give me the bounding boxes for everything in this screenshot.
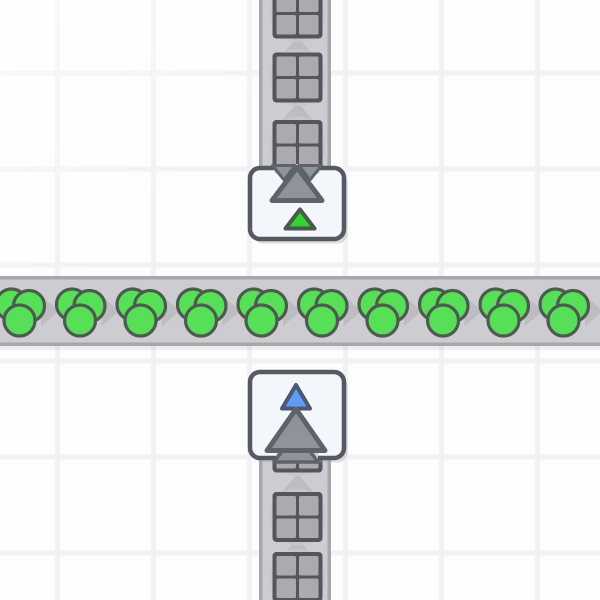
green-circle <box>367 305 398 336</box>
green-circle <box>65 305 96 336</box>
belt-edge-left <box>259 458 263 600</box>
square-quadrant <box>299 556 319 576</box>
square-shape-item <box>269 0 326 42</box>
square-shape-item <box>269 489 326 546</box>
square-quadrant <box>299 15 319 35</box>
tunnel-exit-tile[interactable] <box>250 164 348 244</box>
factory-world-canvas[interactable] <box>0 0 600 600</box>
square-quadrant <box>299 147 319 167</box>
square-shape-item <box>269 49 326 106</box>
green-circle <box>428 305 459 336</box>
belt-edge-right <box>328 458 332 600</box>
square-quadrant <box>277 147 297 167</box>
belt-edge-top <box>0 276 600 280</box>
green-circle <box>186 305 217 336</box>
square-quadrant <box>299 57 319 77</box>
conveyor-belt-horizontal[interactable] <box>0 276 600 350</box>
belt-edge-right <box>328 0 332 170</box>
tunnel-entry-tile[interactable] <box>250 372 348 463</box>
square-quadrant <box>277 519 297 539</box>
square-quadrant <box>277 57 297 77</box>
square-quadrant <box>299 519 319 539</box>
square-quadrant <box>299 0 319 12</box>
square-quadrant <box>277 579 297 599</box>
belt-edge-bottom <box>0 343 600 347</box>
green-circle <box>125 305 156 336</box>
conveyor-belt-vertical-top[interactable] <box>259 0 331 174</box>
game-viewport[interactable] <box>0 0 600 600</box>
green-circle <box>4 305 35 336</box>
square-quadrant <box>299 496 319 516</box>
square-quadrant <box>299 79 319 99</box>
square-quadrant <box>277 124 297 144</box>
green-circle <box>548 305 579 336</box>
belt-shadow <box>0 346 600 350</box>
square-quadrant <box>277 0 297 12</box>
square-quadrant <box>277 15 297 35</box>
square-quadrant <box>299 579 319 599</box>
belt-edge-left <box>259 0 263 170</box>
square-quadrant <box>277 79 297 99</box>
square-shape-item <box>269 549 326 600</box>
square-quadrant <box>277 496 297 516</box>
green-circle <box>488 305 519 336</box>
square-quadrant <box>299 124 319 144</box>
green-circle <box>307 305 338 336</box>
green-circle <box>246 305 277 336</box>
square-quadrant <box>277 556 297 576</box>
